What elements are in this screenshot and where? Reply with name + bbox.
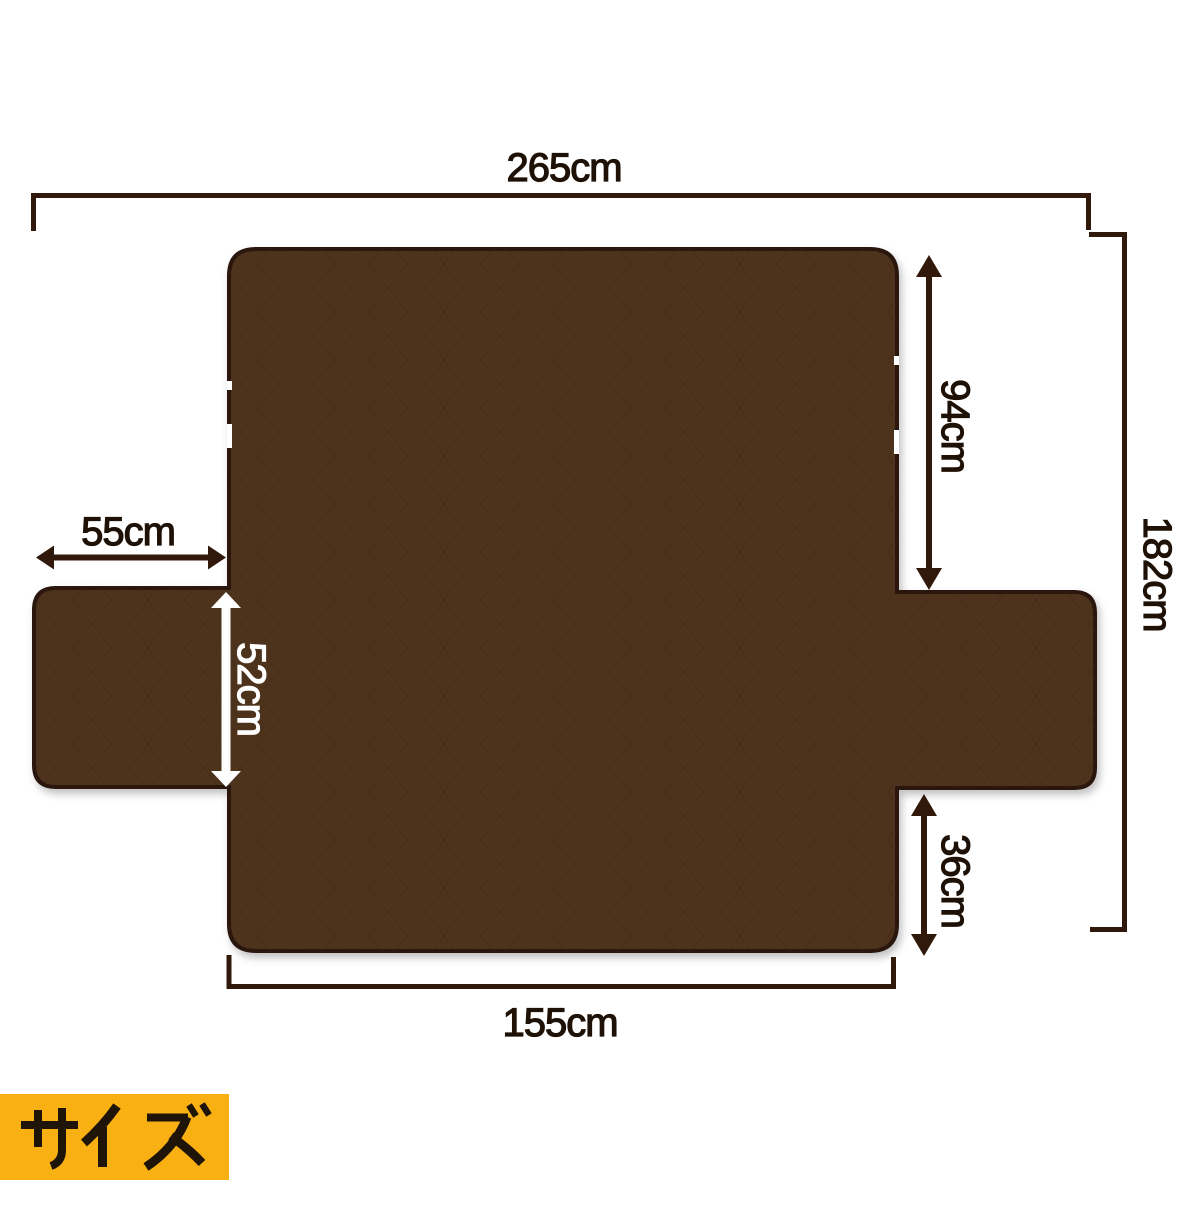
svg-text:155cm: 155cm <box>502 1001 617 1045</box>
svg-text:55cm: 55cm <box>81 510 175 554</box>
svg-text:265cm: 265cm <box>506 146 621 190</box>
svg-text:182cm: 182cm <box>1135 516 1179 631</box>
svg-text:94cm: 94cm <box>933 379 977 473</box>
svg-text:36cm: 36cm <box>933 834 977 928</box>
svg-text:52cm: 52cm <box>229 642 273 736</box>
